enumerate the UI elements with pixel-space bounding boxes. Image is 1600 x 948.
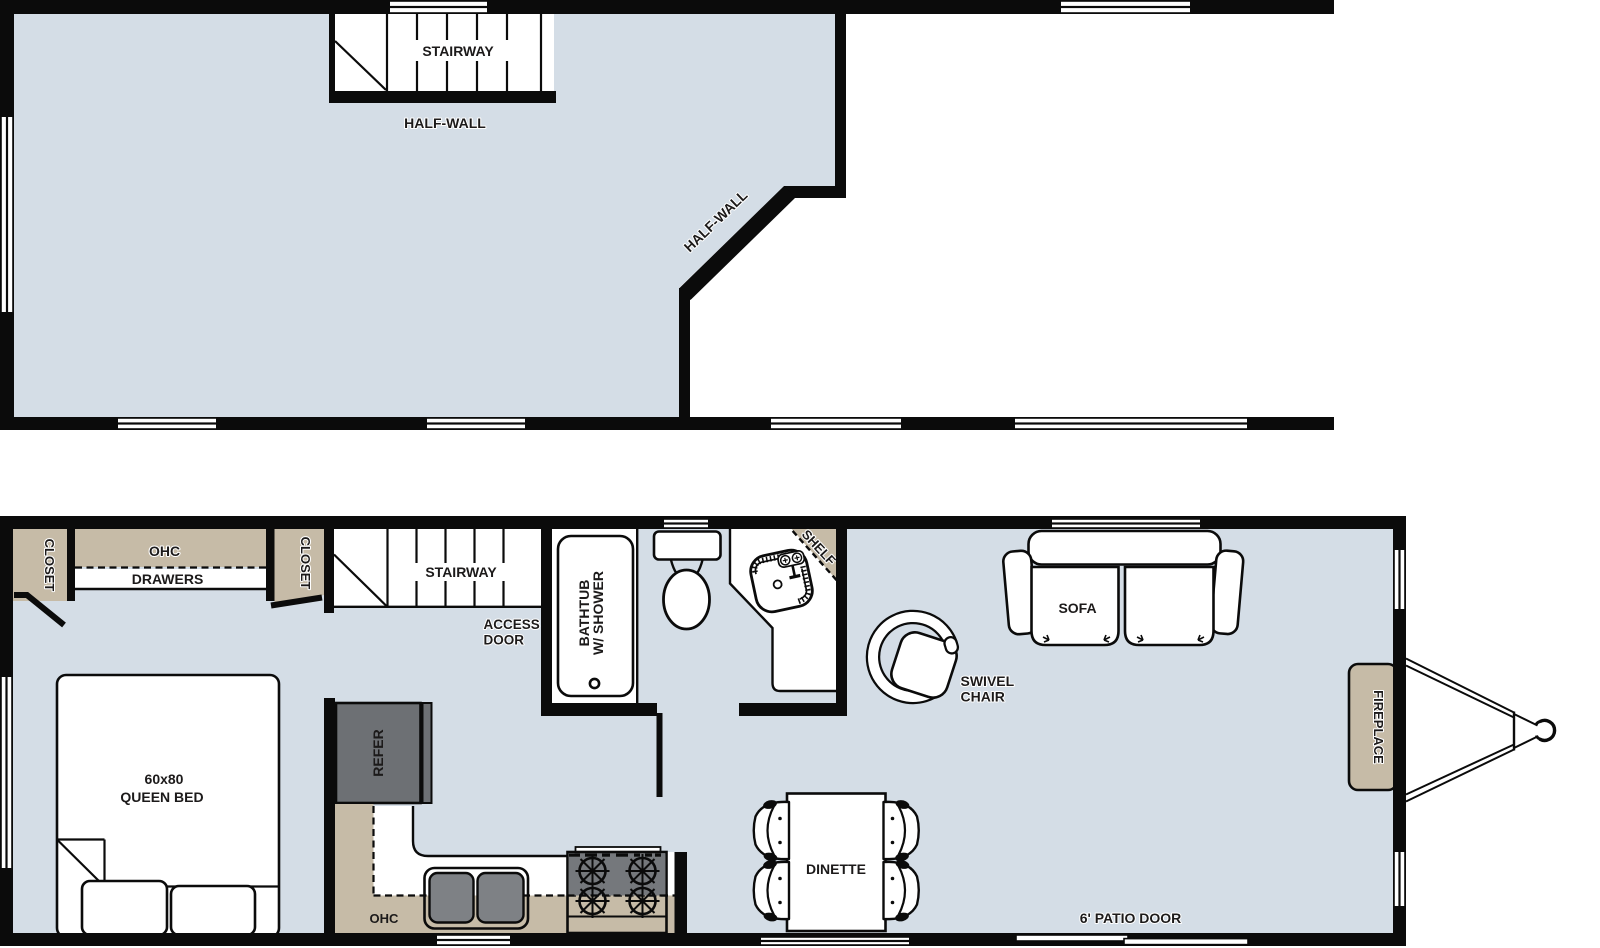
svg-text:SWIVEL: SWIVEL [961,673,1015,689]
svg-text:DINETTE: DINETTE [806,861,866,877]
svg-text:QUEEN BED: QUEEN BED [120,789,203,805]
svg-text:CHAIR: CHAIR [961,689,1005,705]
svg-text:CLOSET: CLOSET [42,539,57,592]
svg-text:HALF-WALL: HALF-WALL [404,115,486,131]
svg-text:STAIRWAY: STAIRWAY [425,564,497,580]
svg-text:DOOR: DOOR [484,633,525,648]
svg-text:OHC: OHC [149,543,180,559]
svg-text:STAIRWAY: STAIRWAY [422,43,494,59]
svg-text:6' PATIO DOOR: 6' PATIO DOOR [1080,910,1182,926]
svg-text:60x80: 60x80 [145,771,184,787]
svg-text:DRAWERS: DRAWERS [132,571,204,587]
svg-text:SOFA: SOFA [1058,600,1096,616]
svg-text:FIREPLACE: FIREPLACE [1371,690,1386,764]
svg-text:W/ SHOWER: W/ SHOWER [590,571,606,655]
svg-text:CLOSET: CLOSET [298,537,313,590]
svg-text:ACCESS: ACCESS [484,617,540,632]
svg-text:OHC: OHC [370,911,400,926]
svg-text:REFER: REFER [370,729,386,776]
